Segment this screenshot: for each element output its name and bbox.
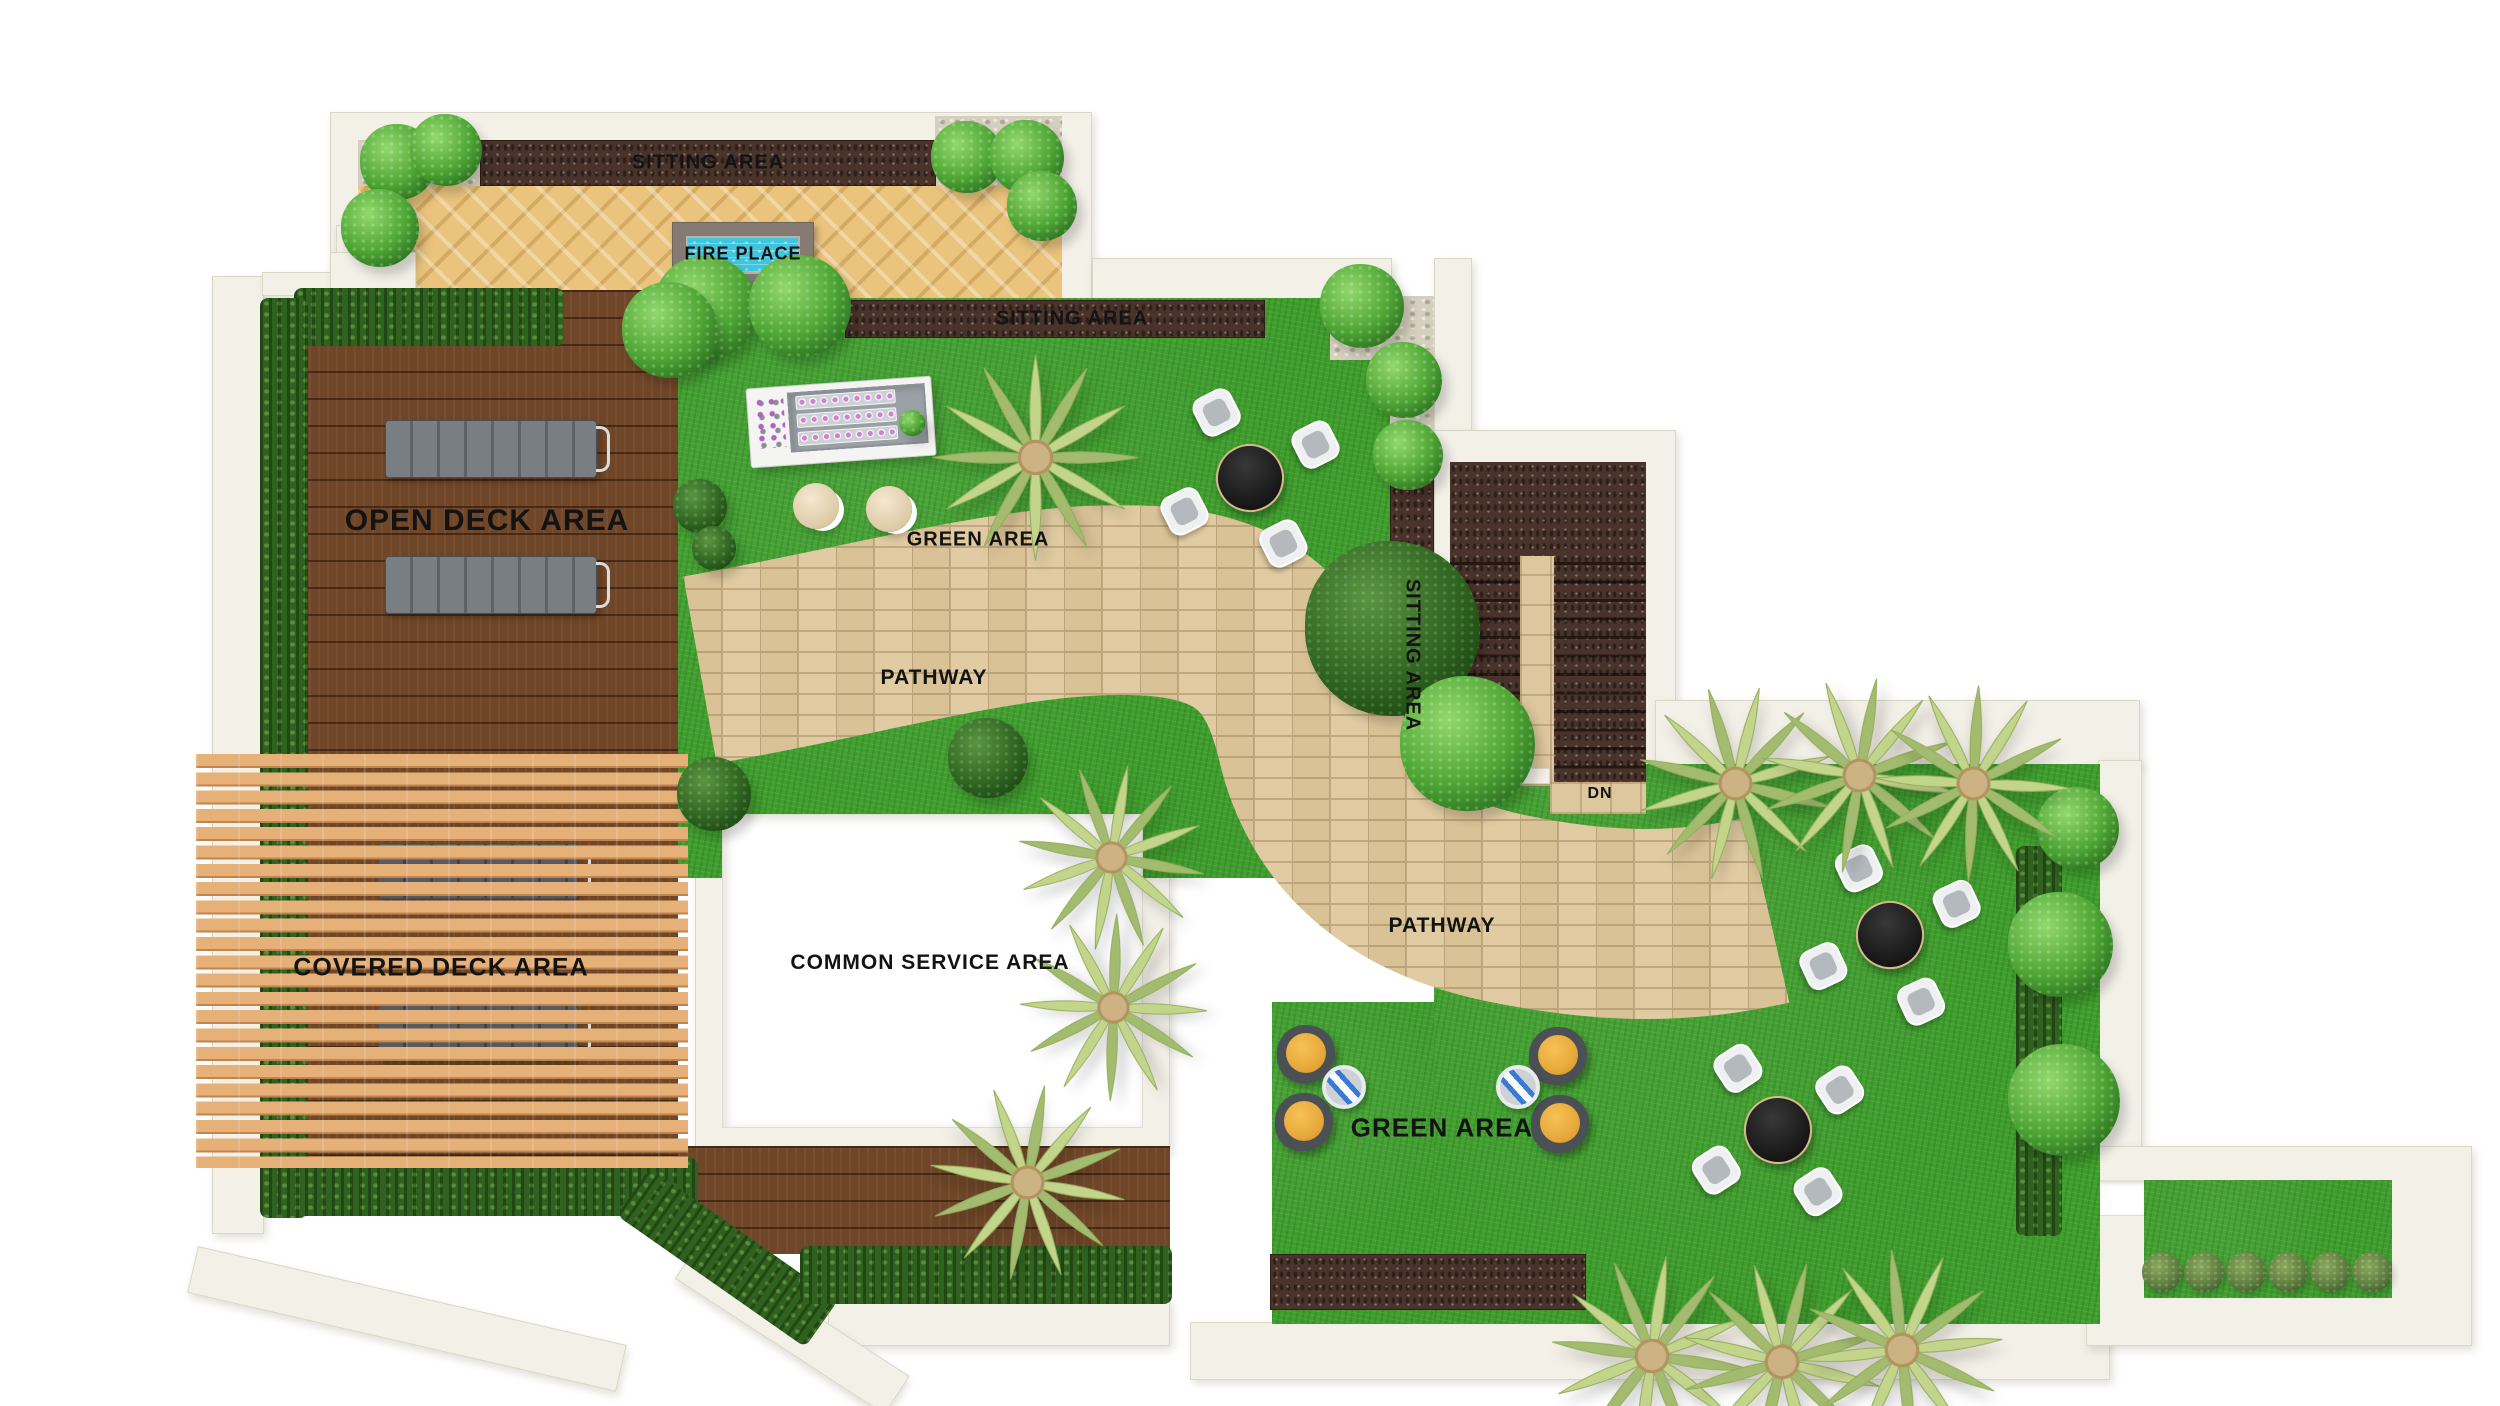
label-sitting-area-side: SITTING AREA [1401,579,1424,731]
label-covered-deck: COVERED DECK AREA [293,954,588,983]
sun-lounger [385,556,597,614]
bush [1366,342,1442,418]
bush [410,114,482,186]
firepit-table [1496,1065,1540,1109]
bar-bottles [753,395,787,449]
bush [341,189,419,267]
bush [1373,420,1443,490]
rooftop-floor-plan: SITTING AREA SITTING AREA SITTING AREA F… [0,0,2500,1406]
bush [677,757,751,831]
label-green-area-lower: GREEN AREA [1351,1113,1533,1144]
bar-stool [793,483,839,529]
sun-lounger [385,420,597,478]
label-sitting-area-top: SITTING AREA [632,152,784,175]
label-common-service: COMMON SERVICE AREA [790,951,1069,975]
stairs-landing [1450,462,1646,562]
plant-tuft [948,718,1028,798]
label-pathway-lower: PATHWAY [1389,914,1496,938]
bush [1007,171,1077,241]
bar-counter [745,376,936,469]
bush [2008,892,2113,997]
dining-set [1689,1041,1867,1219]
dining-table [1846,891,1933,978]
plant-tuft [673,479,727,533]
bar-stool [866,486,912,532]
label-stairs-down: DN [1587,785,1612,803]
bush [1320,264,1404,348]
plant-tuft [692,526,736,570]
dining-table [1207,435,1293,521]
bush [2008,1044,2120,1156]
tree [749,255,851,357]
dining-table [1738,1090,1819,1171]
label-pathway-upper: PATHWAY [881,666,988,690]
label-sitting-area-mid: SITTING AREA [996,308,1148,331]
label-green-area-upper: GREEN AREA [907,529,1050,552]
firepit-table [1322,1065,1366,1109]
tree [622,282,718,378]
label-open-deck: OPEN DECK AREA [345,504,630,538]
label-fire-place: FIRE PLACE [684,244,801,265]
